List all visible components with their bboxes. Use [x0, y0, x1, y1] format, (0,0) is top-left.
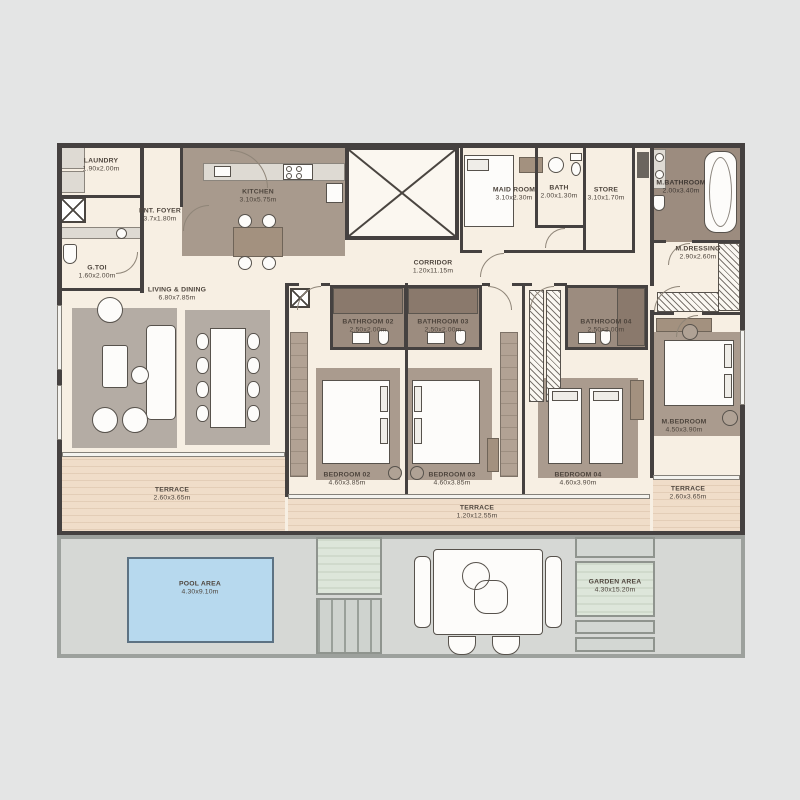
wall	[180, 143, 183, 207]
window	[57, 305, 62, 370]
room-label-corridor: CORRIDOR1.20x11.15m	[413, 259, 453, 275]
room-label-laundry: LAUNDRY1.90x2.00m	[83, 157, 120, 173]
wall	[554, 283, 567, 286]
room-label-store: STORE3.10x1.70m	[588, 186, 625, 202]
room-label-bedroom-04: BEDROOM 044.60x3.90m	[554, 471, 601, 487]
shower-icon	[408, 288, 478, 314]
room-dims: 2.90x2.60m	[675, 253, 720, 261]
toilet-tank-icon	[570, 153, 582, 161]
room-label-terrace-middle: TERRACE1.20x12.55m	[457, 504, 498, 520]
table-decor	[474, 580, 508, 614]
wall	[650, 310, 654, 478]
room-name: TERRACE	[457, 504, 498, 512]
stair-void-x-icon	[349, 150, 455, 236]
chair-icon	[262, 256, 276, 270]
room-dims: 4.60x3.85m	[323, 479, 370, 487]
dresser	[519, 157, 543, 173]
window	[57, 385, 62, 440]
room-label-bath: BATH2.00x1.30m	[541, 184, 578, 200]
room-dims: 1.90x2.00m	[83, 165, 120, 173]
room-label-pool-area: POOL AREA4.30x9.10m	[179, 580, 221, 596]
room-name: BEDROOM 04	[554, 471, 601, 479]
room-dims: 2.00x1.30m	[541, 192, 578, 200]
room-name: GARDEN AREA	[589, 578, 642, 586]
room-dims: 4.50x3.90m	[662, 426, 707, 434]
floor-plan: LAUNDRY1.90x2.00m G.TOI1.60x2.00m ENT. F…	[0, 0, 800, 800]
sink-icon	[655, 153, 664, 162]
dining-chair	[196, 381, 209, 398]
bathtub-basin	[709, 157, 732, 227]
shower-icon	[617, 288, 645, 346]
room-name: STORE	[588, 186, 625, 194]
wall	[504, 250, 635, 253]
steps	[316, 598, 382, 654]
room-name: G.TOI	[79, 264, 116, 272]
wall	[460, 250, 482, 253]
room-name: BATHROOM 03	[417, 318, 468, 326]
pillow	[414, 386, 422, 412]
chair-icon	[238, 214, 252, 228]
wall	[654, 240, 666, 243]
planter	[316, 537, 382, 595]
wall	[654, 312, 674, 315]
kitchen-island-table	[233, 227, 283, 257]
window	[62, 452, 285, 457]
wall	[632, 143, 635, 253]
sink-icon	[116, 228, 127, 239]
sink-icon	[655, 170, 664, 179]
window	[653, 475, 740, 480]
room-label-m-bedroom: M.BEDROOM4.50x3.90m	[662, 418, 707, 434]
window	[740, 330, 745, 405]
room-label-terrace-left: TERRACE2.60x3.65m	[154, 486, 191, 502]
wall	[57, 143, 745, 148]
wall	[285, 283, 299, 286]
stool	[722, 410, 738, 426]
dining-chair	[247, 333, 260, 350]
wall	[57, 195, 144, 198]
room-dims: 6.80x7.85m	[148, 294, 206, 302]
room-label-m-dressing: M.DRESSING2.90x2.60m	[675, 245, 720, 261]
toilet-icon	[63, 244, 77, 264]
room-dims: 4.60x3.85m	[428, 479, 475, 487]
room-label-kitchen: KITCHEN3.10x5.75m	[240, 188, 277, 204]
burner-icon	[296, 166, 302, 172]
room-name: LAUNDRY	[83, 157, 120, 165]
outdoor-chair	[545, 556, 562, 628]
wall	[321, 283, 330, 286]
shower-icon	[333, 288, 403, 314]
outdoor-chair	[414, 556, 431, 628]
wall	[57, 288, 144, 291]
room-label-living-dining: LIVING & DINING6.80x7.85m	[148, 286, 206, 302]
room-name: POOL AREA	[179, 580, 221, 588]
wall	[405, 283, 408, 497]
pillow	[414, 418, 422, 444]
wall	[482, 283, 490, 286]
garden-slab	[575, 620, 655, 634]
coffee-table	[102, 345, 128, 388]
room-name: BEDROOM 03	[428, 471, 475, 479]
armchair-icon	[92, 407, 118, 433]
pillow	[724, 374, 732, 398]
vanity-counter	[60, 227, 142, 239]
dining-chair	[247, 357, 260, 374]
wall	[692, 240, 740, 243]
wall	[460, 143, 463, 253]
room-dims: 4.60x3.90m	[554, 479, 601, 487]
room-dims: 2.60x3.65m	[670, 493, 707, 501]
room-dims: 2.60x3.65m	[154, 494, 191, 502]
wall	[535, 143, 538, 228]
shaft	[637, 152, 649, 178]
wall	[525, 283, 532, 286]
wall	[285, 283, 289, 497]
room-name: TERRACE	[670, 485, 707, 493]
room-dims: 3.10x2.30m	[493, 194, 535, 202]
window	[288, 494, 650, 499]
armchair-icon	[97, 297, 123, 323]
room-dims: 1.60x2.00m	[79, 272, 116, 280]
room-dims: 2.50x2.00m	[342, 326, 393, 334]
room-name: CORRIDOR	[413, 259, 453, 267]
wall	[650, 143, 654, 286]
room-label-m-bathroom: M.BATHROOM2.00x3.40m	[656, 179, 705, 195]
room-name: BATH	[541, 184, 578, 192]
desk	[630, 380, 644, 420]
pillow	[380, 386, 388, 412]
room-name: TERRACE	[154, 486, 191, 494]
garden-slab	[575, 637, 655, 652]
chair-icon	[238, 256, 252, 270]
room-name: LIVING & DINING	[148, 286, 206, 294]
pillow	[467, 159, 489, 171]
washer-icon	[60, 147, 85, 169]
room-label-bathroom-03: BATHROOM 032.50x2.00m	[417, 318, 468, 334]
fridge-icon	[326, 183, 343, 203]
room-dims: 2.00x3.40m	[656, 187, 705, 195]
wardrobe-strip	[500, 332, 518, 477]
dining-chair	[196, 357, 209, 374]
armchair-icon	[122, 407, 148, 433]
room-name: MAID ROOM	[493, 186, 535, 194]
room-dims: 4.30x9.10m	[179, 588, 221, 596]
pillow	[593, 391, 619, 401]
burner-icon	[286, 173, 292, 179]
room-label-garden-area: GARDEN AREA4.30x15.20m	[589, 578, 642, 594]
pillow	[380, 418, 388, 444]
room-label-bathroom-02: BATHROOM 022.50x2.00m	[342, 318, 393, 334]
chair-icon	[262, 214, 276, 228]
dining-chair	[247, 405, 260, 422]
burner-icon	[286, 166, 292, 172]
wall	[512, 283, 522, 286]
bed-icon	[412, 380, 480, 464]
room-dims: 1.20x11.15m	[413, 267, 453, 275]
room-label-g-toi: G.TOI1.60x2.00m	[79, 264, 116, 280]
dining-chair	[196, 333, 209, 350]
sofa-icon	[146, 325, 176, 420]
desk	[487, 438, 499, 472]
pillow	[724, 344, 732, 368]
wall	[522, 283, 525, 497]
room-dims: 4.30x15.20m	[589, 586, 642, 594]
room-name: M.DRESSING	[675, 245, 720, 253]
pool	[127, 557, 274, 643]
room-label-bathroom-04: BATHROOM 042.50x2.00m	[580, 318, 631, 334]
shaft-x-icon	[60, 197, 86, 223]
toilet-icon	[571, 162, 581, 176]
room-dims: 3.10x1.70m	[588, 194, 625, 202]
room-dims: 2.50x2.00m	[580, 326, 631, 334]
room-dims: 2.50x2.00m	[417, 326, 468, 334]
room-label-terrace-right: TERRACE2.60x3.65m	[670, 485, 707, 501]
room-label-bedroom-03: BEDROOM 034.60x3.85m	[428, 471, 475, 487]
wall	[535, 225, 586, 228]
dining-table-icon	[210, 328, 246, 428]
sink-icon	[548, 157, 564, 173]
sink-icon	[214, 166, 231, 177]
wardrobe-strip	[290, 332, 308, 477]
toilet-icon	[653, 195, 665, 211]
room-name: M.BEDROOM	[662, 418, 707, 426]
room-name: ENT. FOYER	[139, 207, 181, 215]
washer-icon	[60, 171, 85, 193]
stair-void	[345, 146, 459, 240]
pillow	[552, 391, 578, 401]
room-dims: 1.20x12.55m	[457, 512, 498, 520]
room-dims: 3.7x1.80m	[139, 215, 181, 223]
room-dims: 3.10x5.75m	[240, 196, 277, 204]
room-label-bedroom-02: BEDROOM 024.60x3.85m	[323, 471, 370, 487]
stool	[410, 466, 424, 480]
dining-chair	[196, 405, 209, 422]
room-name: BATHROOM 04	[580, 318, 631, 326]
wall	[583, 143, 586, 253]
side-table	[131, 366, 149, 384]
dining-chair	[247, 381, 260, 398]
room-name: KITCHEN	[240, 188, 277, 196]
stool	[388, 466, 402, 480]
wardrobe-rack-icon	[718, 243, 740, 311]
wall	[702, 312, 740, 315]
room-name: BEDROOM 02	[323, 471, 370, 479]
garden-slab	[575, 537, 655, 558]
room-name: BATHROOM 02	[342, 318, 393, 326]
room-label-maid-room: MAID ROOM3.10x2.30m	[493, 186, 535, 202]
burner-icon	[296, 173, 302, 179]
room-label-ent-foyer: ENT. FOYER3.7x1.80m	[139, 207, 181, 223]
room-name: M.BATHROOM	[656, 179, 705, 187]
wall	[57, 531, 745, 535]
